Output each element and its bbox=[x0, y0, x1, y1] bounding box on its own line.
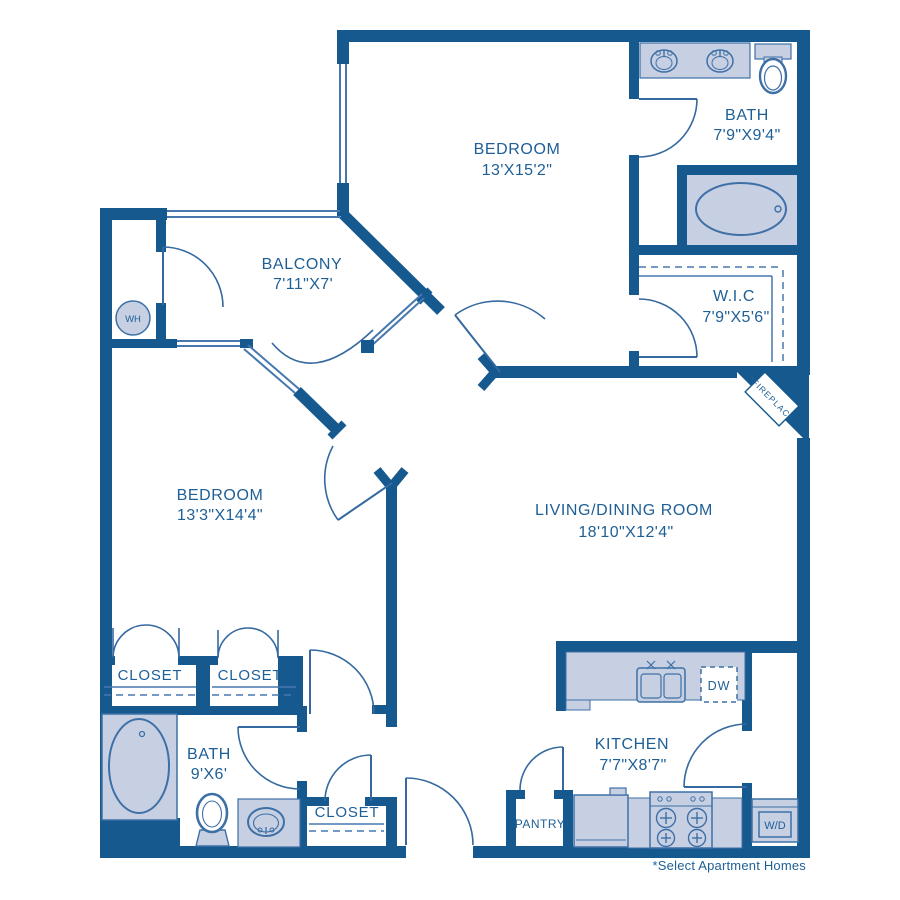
bathtub-icon bbox=[102, 714, 177, 820]
french-doors-closet-1 bbox=[113, 625, 179, 658]
room-dims: 7'9"X9'4" bbox=[713, 127, 780, 144]
sink-icon bbox=[707, 50, 733, 72]
window bbox=[177, 341, 240, 346]
door-hall-nook bbox=[310, 650, 374, 714]
walls bbox=[100, 30, 810, 858]
refrigerator-icon bbox=[574, 788, 628, 847]
double-vanity bbox=[640, 43, 750, 78]
water-heater-label: WH bbox=[125, 314, 141, 325]
floor-plan-drawing: BEDROOM 13'X15'2" BATH 7'9"X9'4" BALCONY… bbox=[0, 0, 900, 900]
room-name: BALCONY bbox=[262, 256, 343, 273]
room-label-bath-2: BATH 9'X6' bbox=[187, 746, 231, 783]
door-wic bbox=[639, 299, 697, 357]
room-label-bath-1: BATH 7'9"X9'4" bbox=[713, 107, 780, 144]
room-label-living: LIVING/DINING ROOM 18'10"X12'4" bbox=[535, 502, 713, 541]
room-dims: 9'X6' bbox=[191, 766, 228, 783]
sink-icon bbox=[238, 799, 300, 847]
stove-icon bbox=[650, 792, 712, 848]
room-name: BATH bbox=[187, 746, 231, 763]
room-label-closet-1: CLOSET bbox=[118, 667, 183, 684]
balcony-railing bbox=[167, 211, 340, 217]
door-bath-2 bbox=[238, 727, 300, 789]
room-label-bedroom-2: BEDROOM 13'3"X14'4" bbox=[177, 487, 264, 524]
room-name: KITCHEN bbox=[595, 736, 669, 753]
room-label-balcony: BALCONY 7'11"X7' bbox=[262, 256, 343, 293]
door-pantry bbox=[520, 747, 563, 790]
washer-dryer-label: W/D bbox=[764, 820, 785, 832]
sliding-door bbox=[361, 294, 424, 353]
window bbox=[337, 64, 349, 183]
dishwasher-label: DW bbox=[708, 679, 731, 693]
room-dims: 7'7"X8'7" bbox=[599, 757, 666, 774]
room-label-closet-3: CLOSET bbox=[315, 804, 380, 821]
room-name: BEDROOM bbox=[474, 141, 561, 158]
room-dims: 13'3"X14'4" bbox=[177, 507, 263, 524]
room-dims: 13'X15'2" bbox=[482, 162, 553, 179]
room-label-closet-2: CLOSET bbox=[218, 667, 283, 684]
room-dims: 7'11"X7' bbox=[273, 276, 333, 293]
room-name: BEDROOM bbox=[177, 487, 264, 504]
door-closet-3 bbox=[325, 755, 371, 801]
floor-plan-page: BEDROOM 13'X15'2" BATH 7'9"X9'4" BALCONY… bbox=[0, 0, 900, 900]
french-doors-closet-2 bbox=[218, 628, 278, 658]
room-label-kitchen: KITCHEN 7'7"X8'7" bbox=[595, 736, 669, 774]
door-bedroom-1 bbox=[455, 301, 545, 372]
room-name: BATH bbox=[725, 107, 769, 124]
toilet-icon bbox=[196, 794, 229, 846]
room-label-pantry: PANTRY bbox=[515, 817, 566, 831]
toilet-icon bbox=[755, 44, 791, 93]
bathtub-icon bbox=[687, 175, 797, 245]
sliding-door bbox=[244, 345, 299, 393]
door-water-heater bbox=[163, 247, 223, 307]
entry-door bbox=[406, 778, 473, 845]
room-dims: 7'9"X5'6" bbox=[702, 309, 769, 326]
sink-icon bbox=[651, 50, 677, 72]
door-kitchen bbox=[684, 724, 747, 787]
room-name: W.I.C bbox=[713, 288, 755, 305]
room-label-wic: W.I.C 7'9"X5'6" bbox=[702, 288, 769, 326]
room-label-bedroom-1: BEDROOM 13'X15'2" bbox=[474, 141, 561, 179]
fixtures bbox=[102, 43, 799, 848]
door-balcony-swing bbox=[272, 330, 373, 363]
windows bbox=[167, 64, 424, 393]
room-name: LIVING/DINING ROOM bbox=[535, 502, 713, 519]
room-dims: 18'10"X12'4" bbox=[578, 524, 673, 541]
door-bath-1 bbox=[639, 99, 697, 157]
footnote: *Select Apartment Homes bbox=[653, 858, 807, 873]
